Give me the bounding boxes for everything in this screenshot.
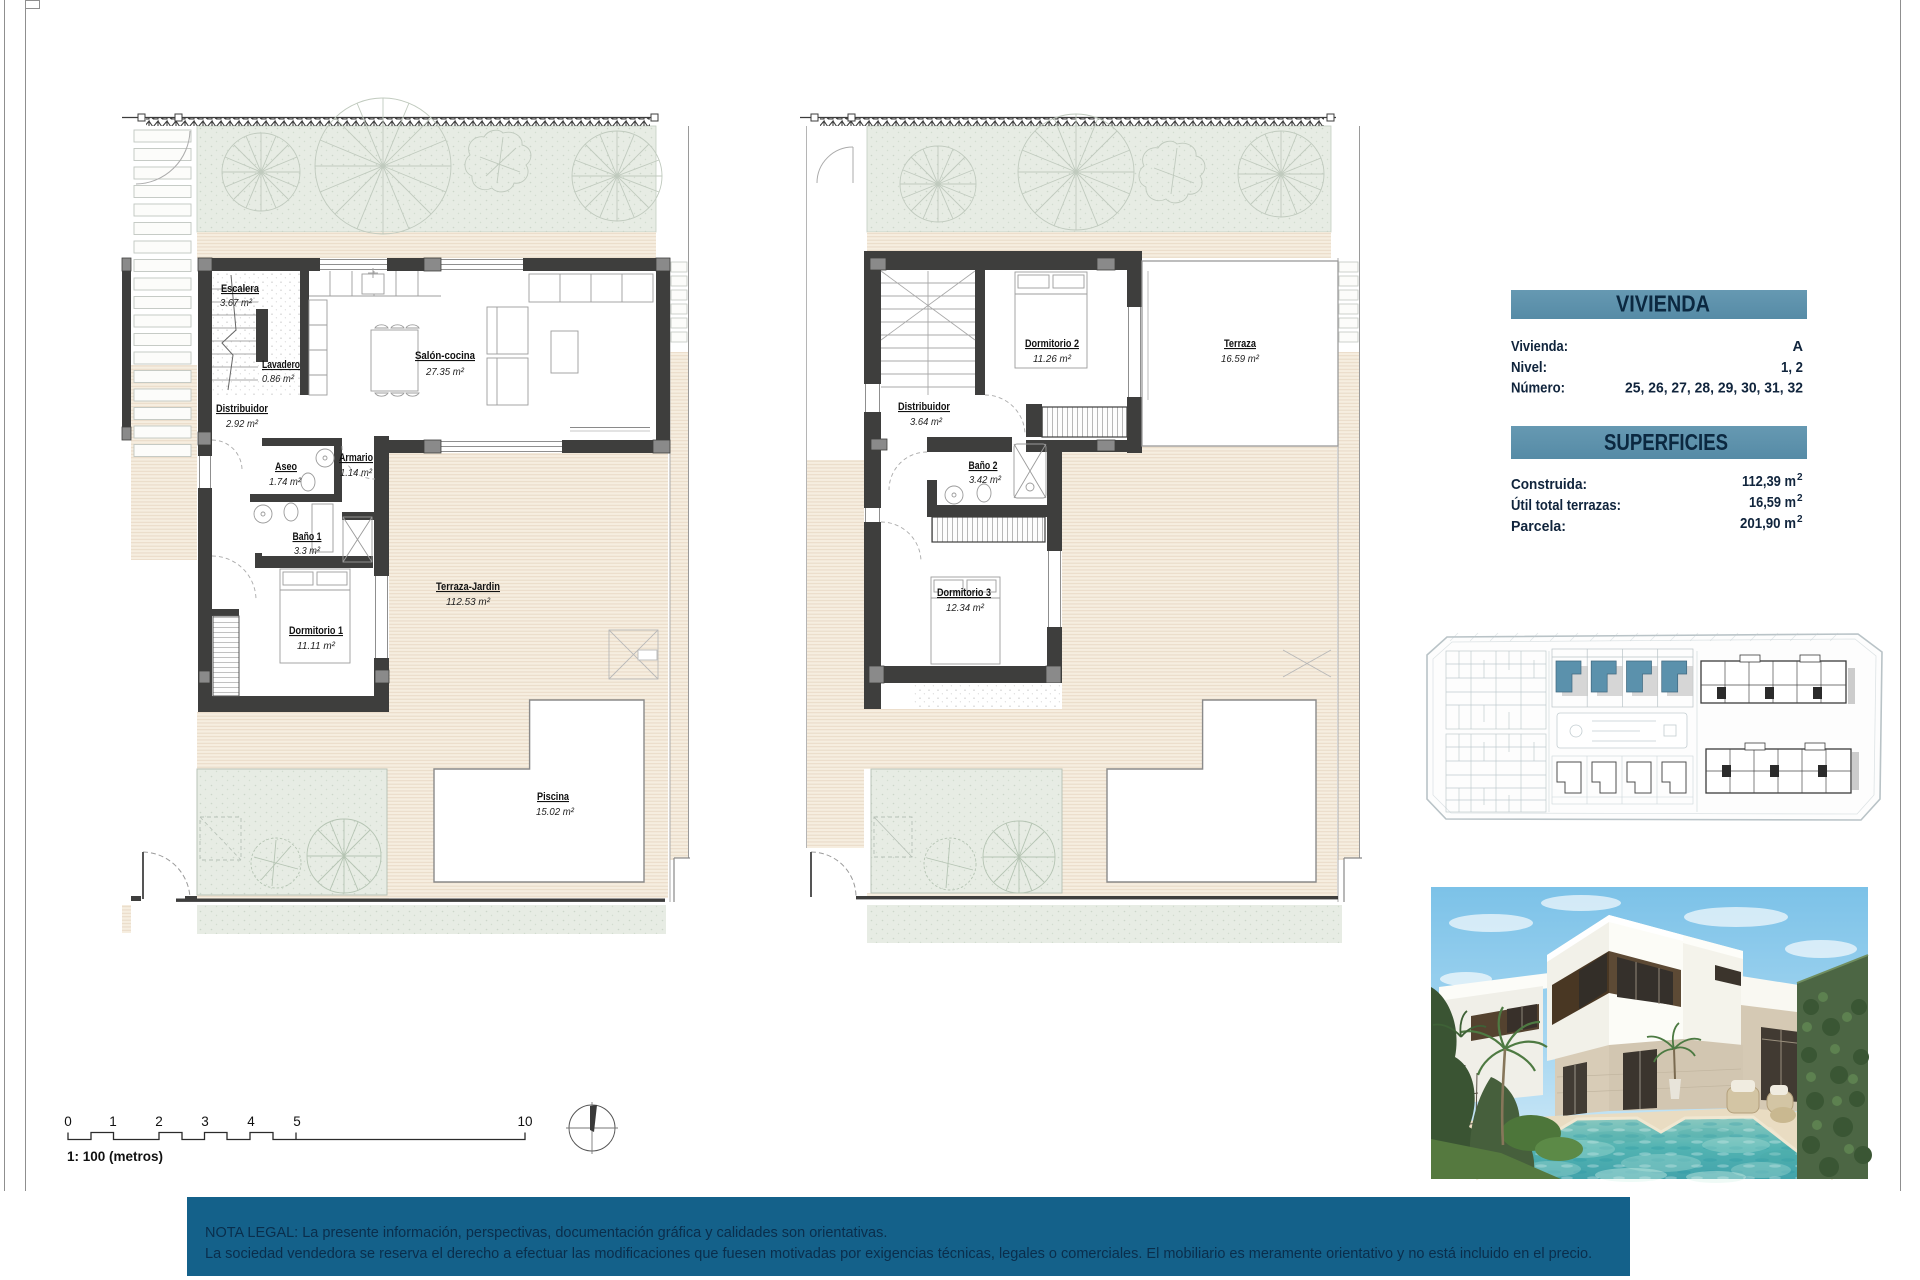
svg-text:16,59 m: 16,59 m <box>1749 495 1796 511</box>
svg-text:2: 2 <box>1797 493 1803 504</box>
svg-text:Vivienda:: Vivienda: <box>1511 339 1568 355</box>
svg-text:5: 5 <box>293 1114 301 1129</box>
svg-text:Piscina: Piscina <box>537 791 570 803</box>
svg-text:Baño 2: Baño 2 <box>969 460 998 472</box>
svg-text:Terraza-Jardin: Terraza-Jardin <box>436 581 500 593</box>
svg-text:Dormitorio 2: Dormitorio 2 <box>1025 338 1079 350</box>
svg-text:11.11 m²: 11.11 m² <box>297 640 335 652</box>
svg-text:11.26 m²: 11.26 m² <box>1033 353 1071 365</box>
svg-text:Terraza: Terraza <box>1224 338 1257 350</box>
svg-text:SUPERFICIES: SUPERFICIES <box>1604 429 1728 455</box>
svg-text:112,39 m: 112,39 m <box>1742 474 1796 490</box>
svg-text:Aseo: Aseo <box>275 461 297 473</box>
svg-text:3.64 m²: 3.64 m² <box>910 416 942 428</box>
svg-text:Distribuidor: Distribuidor <box>216 403 269 415</box>
svg-text:1, 2: 1, 2 <box>1781 360 1803 376</box>
svg-text:0: 0 <box>64 1114 72 1129</box>
svg-text:Nivel:: Nivel: <box>1511 360 1547 376</box>
svg-text:10: 10 <box>517 1114 532 1129</box>
svg-text:Armario: Armario <box>339 452 373 464</box>
svg-text:16.59 m²: 16.59 m² <box>1221 353 1259 365</box>
svg-text:25, 26, 27, 28, 29, 30, 31, 3: 25, 26, 27, 28, 29, 30, 31, 32 <box>1625 381 1803 397</box>
svg-text:3: 3 <box>201 1114 209 1129</box>
svg-text:Número:: Número: <box>1511 381 1565 397</box>
svg-text:2: 2 <box>1797 514 1803 525</box>
svg-text:Lavadero: Lavadero <box>262 359 300 371</box>
svg-text:1: 1 <box>109 1114 117 1129</box>
svg-text:2.92 m²: 2.92 m² <box>225 418 258 430</box>
svg-text:1.74 m²: 1.74 m² <box>269 476 301 488</box>
svg-text:0.86 m²: 0.86 m² <box>262 373 294 385</box>
svg-text:Dormitorio 3: Dormitorio 3 <box>937 587 991 599</box>
svg-text:1.14 m²: 1.14 m² <box>340 467 372 479</box>
svg-text:4: 4 <box>247 1114 255 1129</box>
svg-text:2: 2 <box>1797 472 1803 483</box>
svg-text:Baño 1: Baño 1 <box>293 531 322 543</box>
svg-text:201,90 m: 201,90 m <box>1740 516 1796 532</box>
svg-text:2: 2 <box>155 1114 163 1129</box>
svg-text:Construida:: Construida: <box>1511 477 1587 493</box>
svg-text:Escalera: Escalera <box>221 283 260 295</box>
svg-text:15.02 m²: 15.02 m² <box>536 806 574 818</box>
svg-text:12.34 m²: 12.34 m² <box>946 602 984 614</box>
svg-text:Parcela:: Parcela: <box>1511 519 1566 535</box>
svg-text:Salón-cocina: Salón-cocina <box>415 350 476 362</box>
svg-text:VIVIENDA: VIVIENDA <box>1616 291 1710 317</box>
svg-text:A: A <box>1792 339 1803 355</box>
svg-text:27.35 m²: 27.35 m² <box>425 366 464 378</box>
svg-text:Distribuidor: Distribuidor <box>898 401 951 413</box>
svg-text:112.53 m²: 112.53 m² <box>446 596 490 608</box>
svg-text:3.42 m²: 3.42 m² <box>969 474 1001 486</box>
svg-text:Útil total terrazas:: Útil total terrazas: <box>1511 496 1621 514</box>
svg-text:1: 100 (metros): 1: 100 (metros) <box>67 1149 163 1164</box>
svg-text:3.67 m²: 3.67 m² <box>220 297 252 309</box>
svg-text:Dormitorio 1: Dormitorio 1 <box>289 625 343 637</box>
svg-text:La sociedad vendedora se reser: La sociedad vendedora se reserva el dere… <box>205 1246 1592 1262</box>
svg-text:NOTA LEGAL: La presente inform: NOTA LEGAL: La presente información, per… <box>205 1225 887 1241</box>
svg-text:3.3 m²: 3.3 m² <box>294 545 320 557</box>
